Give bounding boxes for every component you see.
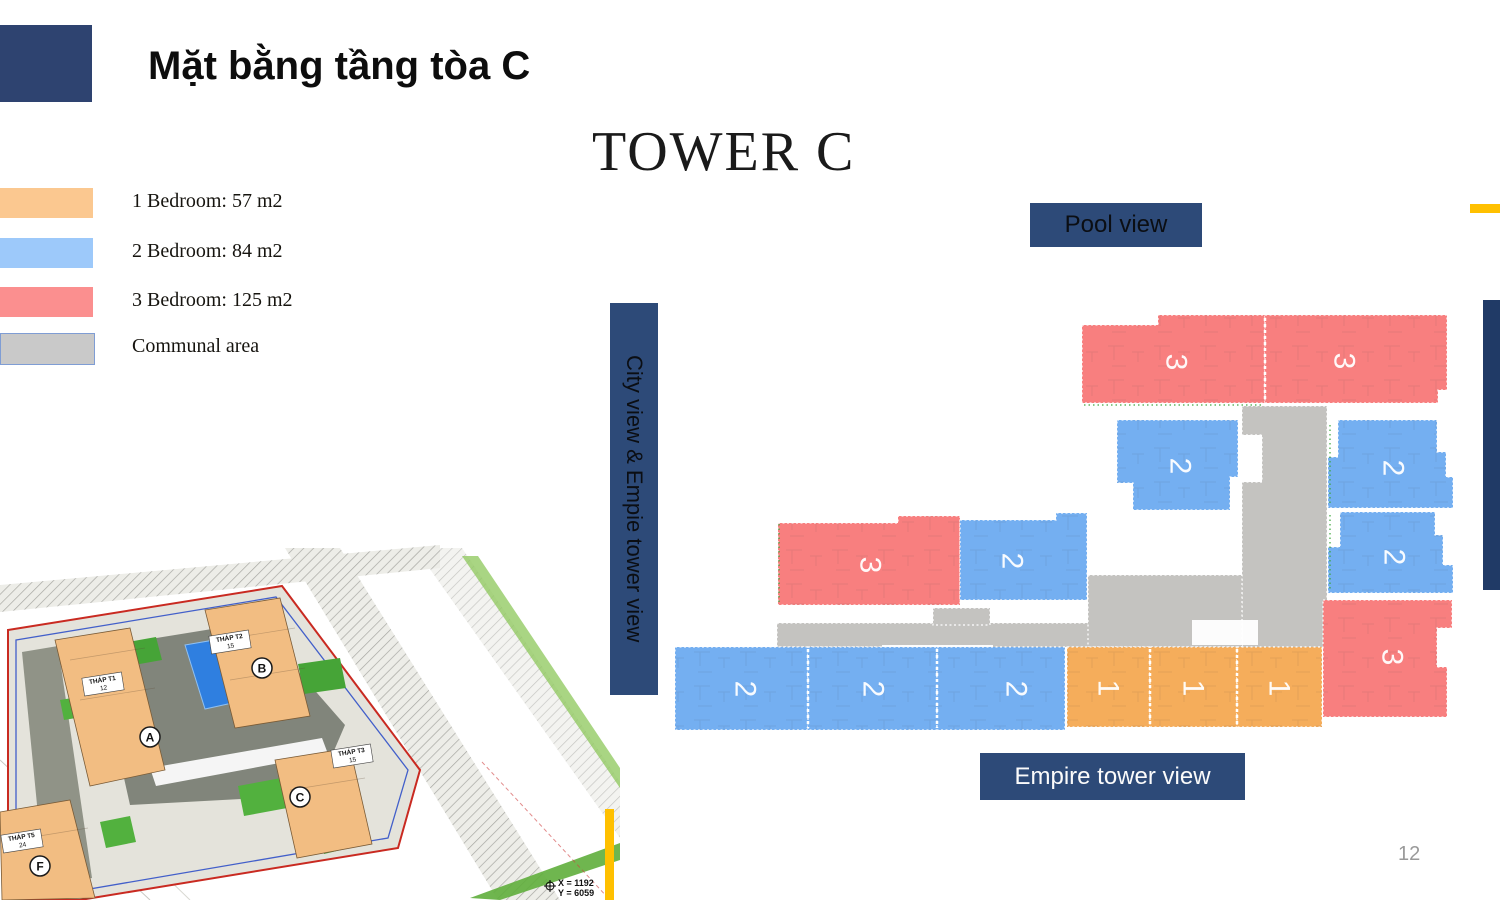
legend-swatch — [0, 238, 93, 268]
unit-number: 3 — [854, 557, 887, 574]
unit-number: 1 — [1263, 680, 1296, 697]
svg-text:15: 15 — [227, 642, 236, 650]
header-accent-block — [0, 25, 92, 102]
unit-number: 2 — [1000, 681, 1033, 698]
tower-marker-letter: F — [36, 860, 43, 874]
legend-label: 3 Bedroom: 125 m2 — [132, 289, 293, 312]
unit-number: 2 — [1164, 458, 1197, 475]
corridor-area — [933, 608, 990, 625]
void-area — [1192, 620, 1258, 645]
unit-number: 2 — [1377, 460, 1410, 477]
slide: Mặt bằng tầng tòa C TOWER C 1 Bedroom: 5… — [0, 0, 1500, 900]
unit-number: 1 — [1092, 680, 1125, 697]
page-title: Mặt bằng tầng tòa C — [148, 44, 530, 89]
svg-text:24: 24 — [19, 841, 28, 849]
legend-swatch — [0, 333, 95, 365]
unit-number: 2 — [996, 553, 1029, 570]
unit-number: 2 — [729, 681, 762, 698]
legend-label: 1 Bedroom: 57 m2 — [132, 190, 283, 213]
survey-coordinate-text: Y = 6059 — [558, 888, 594, 898]
tower-marker-letter: A — [146, 731, 155, 745]
unit-number: 3 — [1328, 353, 1361, 370]
legend-label: 2 Bedroom: 84 m2 — [132, 240, 283, 263]
tower-marker-letter: C — [296, 791, 305, 805]
site-plan-drawing: THÁP T112THÁP T215THÁP T315THÁP T524ABCF… — [0, 545, 625, 900]
survey-coordinate-text: X = 1192 — [558, 878, 594, 888]
city-view-label: City view & Empie tower view — [610, 303, 658, 695]
pool-view-label: Pool view — [1030, 203, 1202, 247]
legend-swatch — [0, 287, 93, 317]
floor-plan-diagram: 33332222222111 — [660, 300, 1500, 760]
unit-number: 2 — [857, 681, 890, 698]
unit-number: 3 — [1376, 649, 1409, 666]
svg-text:12: 12 — [100, 684, 109, 692]
svg-text:15: 15 — [349, 756, 358, 764]
gold-accent-bottom — [605, 809, 614, 900]
unit-number: 2 — [1378, 549, 1411, 566]
city-view-text: City view & Empie tower view — [621, 355, 647, 642]
pool-view-text: Pool view — [1065, 211, 1168, 239]
unit-number: 1 — [1177, 680, 1210, 697]
unit-number: 3 — [1160, 354, 1193, 371]
tower-subtitle: TOWER C — [592, 120, 855, 184]
site-plan-shape — [298, 658, 346, 694]
corridor-area — [1242, 406, 1327, 647]
gold-accent-top — [1470, 204, 1500, 213]
legend-swatch — [0, 188, 93, 218]
empire-tower-view-text: Empire tower view — [1014, 763, 1210, 791]
tower-marker-letter: B — [258, 662, 267, 676]
legend-label: Communal area — [132, 335, 259, 358]
empire-tower-view-label: Empire tower view — [980, 753, 1245, 800]
page-number: 12 — [1398, 843, 1420, 866]
right-accent-bar — [1483, 300, 1500, 590]
